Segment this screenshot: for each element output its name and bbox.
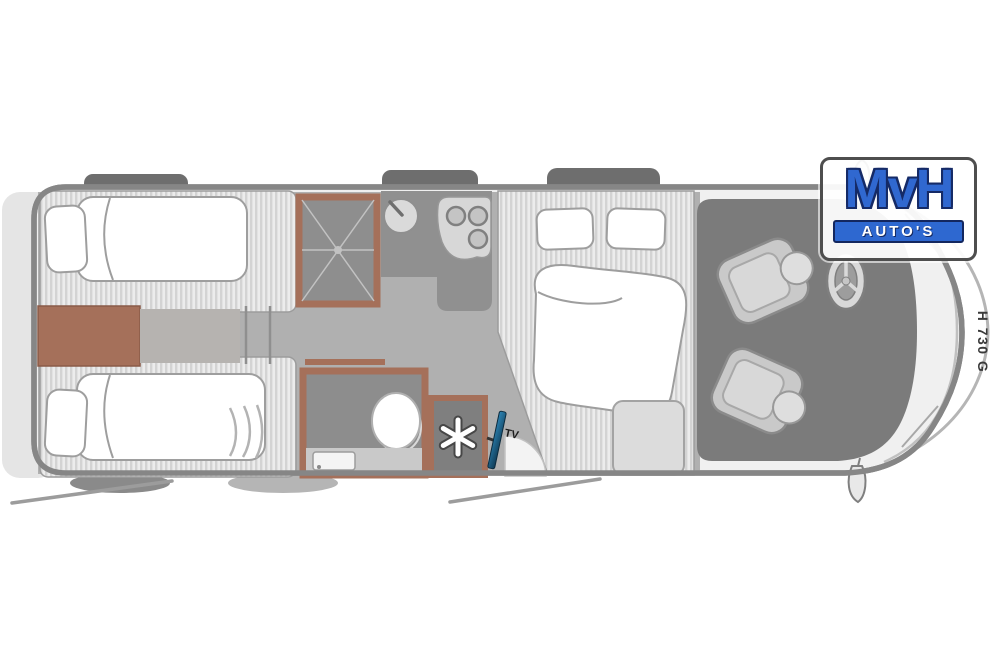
steering-wheel-icon [827,253,865,309]
duvet [77,197,247,281]
shower-cubicle [299,197,377,304]
dealer-logo: MvH AUTO'S [820,157,977,261]
bench-seat [613,401,684,475]
duvet [534,265,687,415]
pillow [44,205,87,273]
rear-twin-bed-bottom [44,374,265,460]
model-code-label: H 730 G [975,311,991,374]
bathroom [303,359,425,475]
skirt-line [450,479,600,502]
floorplan-drawing: TV H 730 G [0,0,1000,666]
rear-twin-bed-top [44,197,247,281]
pillow [44,389,87,457]
floorplan-stage: TV H 730 G MvH AUTO'S [0,0,1000,666]
pillow [536,208,593,250]
rear-step [140,309,240,363]
double-bed [534,208,687,415]
pillow [606,208,665,250]
fridge [431,398,485,475]
rear-center-cabinet [38,306,140,366]
hob-panel [438,197,492,259]
dealer-logo-subtext: AUTO'S [833,220,964,243]
basin-drain [317,465,321,469]
dealer-logo-text: MvH [823,160,974,218]
